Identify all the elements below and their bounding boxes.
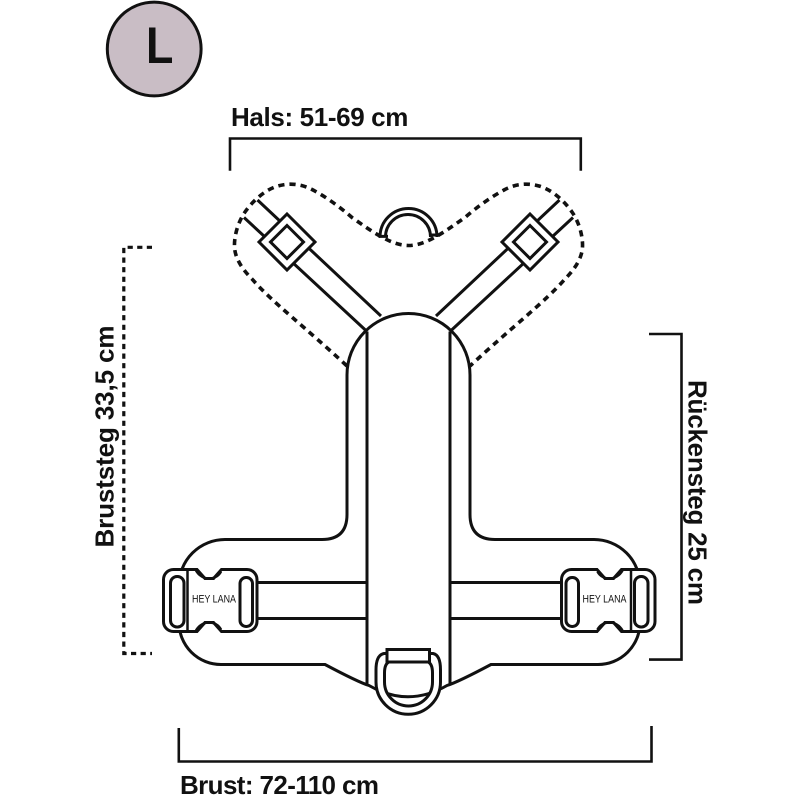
svg-text:HEY LANA: HEY LANA: [192, 594, 237, 606]
svg-text:Hals: 51-69 cm: Hals: 51-69 cm: [231, 102, 408, 132]
svg-text:HEY LANA: HEY LANA: [583, 594, 628, 606]
svg-text:Bruststeg 33,5 cm: Bruststeg 33,5 cm: [90, 326, 120, 548]
svg-text:Rückensteg 25 cm: Rückensteg 25 cm: [683, 380, 713, 605]
svg-text:Brust: 72-110 cm: Brust: 72-110 cm: [180, 770, 379, 800]
